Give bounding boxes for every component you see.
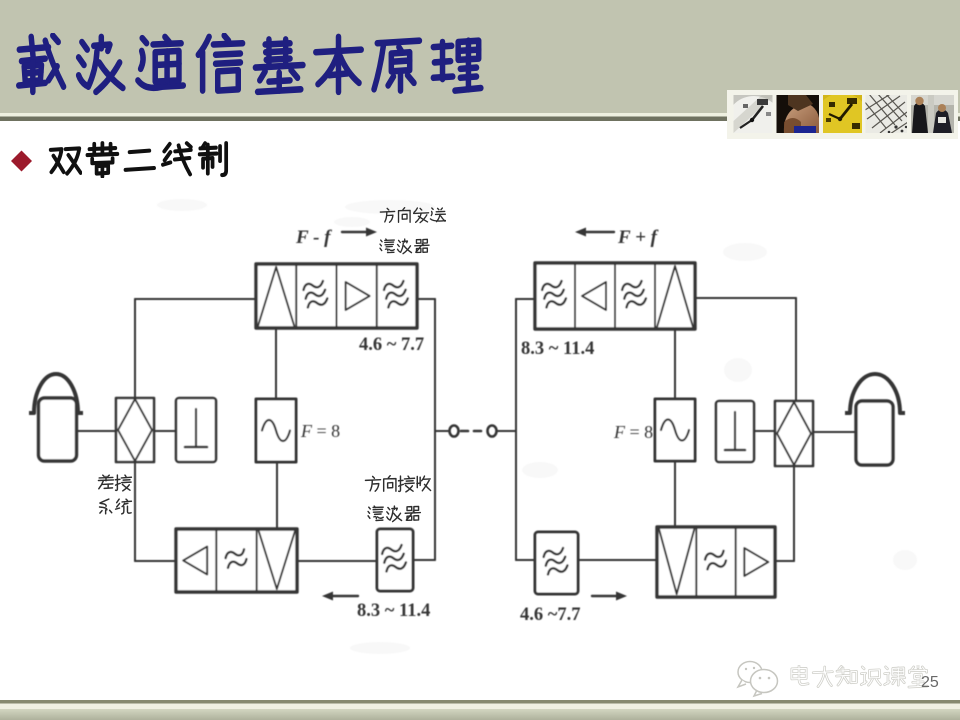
svg-text:F = 8: F = 8 xyxy=(300,421,340,441)
svg-text:F - f: F - f xyxy=(295,227,332,248)
svg-text:8.3 ~ 11.4: 8.3 ~ 11.4 xyxy=(357,601,430,621)
svg-text:F = 8: F = 8 xyxy=(613,422,653,442)
svg-text:F + f: F + f xyxy=(617,227,659,248)
svg-text:8.3 ~ 11.4: 8.3 ~ 11.4 xyxy=(521,339,594,359)
svg-text:4.6 ~7.7: 4.6 ~7.7 xyxy=(520,605,581,625)
svg-text:4.6 ~ 7.7: 4.6 ~ 7.7 xyxy=(359,335,424,355)
svg-text:25: 25 xyxy=(921,674,939,691)
